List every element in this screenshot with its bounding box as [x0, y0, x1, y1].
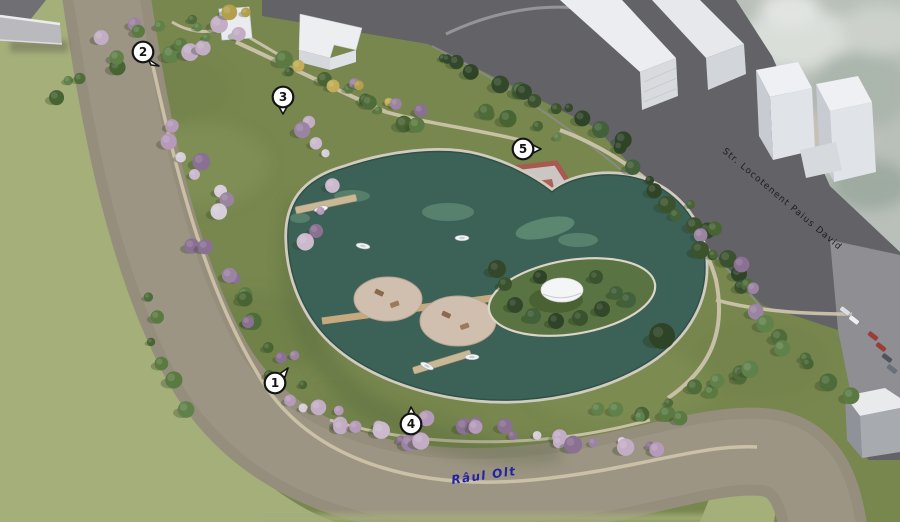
svg-text:1: 1: [271, 376, 279, 390]
boat-3: [455, 235, 469, 241]
svg-text:5: 5: [519, 142, 527, 156]
svg-text:3: 3: [279, 90, 287, 104]
floating-platform-2: [420, 296, 496, 346]
island-pavilion-dome: [541, 278, 583, 302]
boat-5: [465, 354, 479, 360]
svg-text:4: 4: [407, 417, 415, 431]
svg-text:2: 2: [139, 45, 147, 59]
floating-platform-1: [354, 277, 422, 321]
park-render: Str. Locotenent Paius David Râul Olt 123…: [0, 0, 900, 522]
